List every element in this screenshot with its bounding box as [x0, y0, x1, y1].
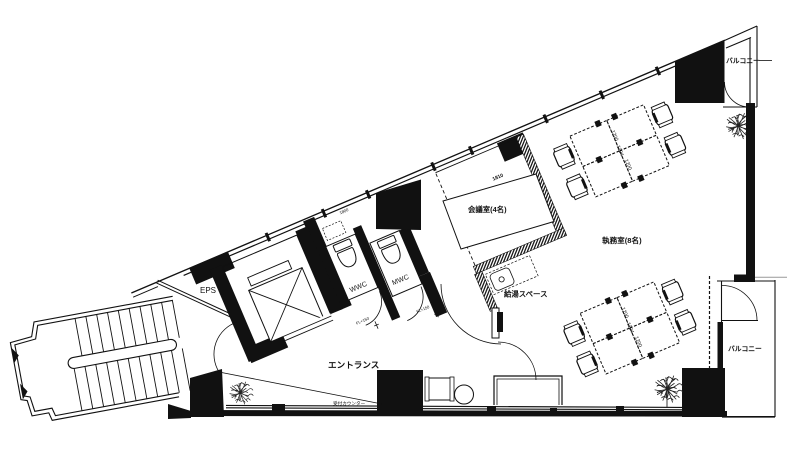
svg-text:受付カウンター: 受付カウンター: [333, 400, 366, 407]
svg-text:執務室(8名): 執務室(8名): [602, 235, 642, 245]
svg-text:バルコニー: バルコニー: [726, 57, 760, 65]
svg-text:給湯スペース: 給湯スペース: [504, 290, 547, 299]
svg-text:EPS: EPS: [200, 286, 216, 295]
svg-text:エントランス: エントランス: [328, 360, 379, 370]
svg-text:バルコニー: バルコニー: [728, 345, 762, 353]
svg-text:会議室(4名): 会議室(4名): [468, 205, 507, 214]
